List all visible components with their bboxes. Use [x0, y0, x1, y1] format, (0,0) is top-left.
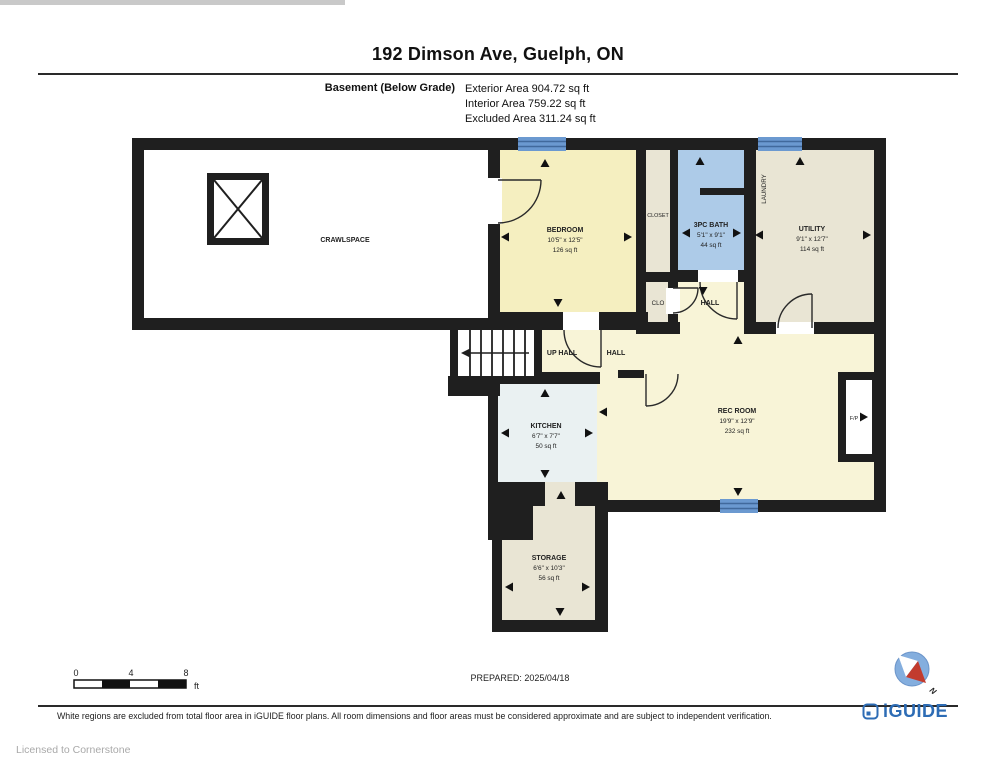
closet-floor [646, 150, 670, 272]
room-label-utility: UTILITY [799, 226, 826, 233]
room-label-hall: HALL [701, 300, 720, 307]
room-label-laundry: LAUNDRY [761, 174, 768, 203]
room-dims-bath: 5'1" x 9'1" [697, 232, 725, 239]
iguide-logo-icon [862, 703, 879, 720]
chimney-box [207, 173, 269, 245]
room-label-bedroom: BEDROOM [547, 227, 584, 234]
prepared-date: PREPARED: 2025/04/18 [400, 673, 640, 683]
room-area-rec-room: 232 sq ft [725, 428, 750, 435]
room-label-kitchen: KITCHEN [530, 423, 561, 430]
room-area-bath: 44 sq ft [701, 242, 722, 249]
room-label-storage: STORAGE [532, 555, 567, 562]
bedroom-window [518, 137, 566, 151]
room-label-hall2: HALL [607, 350, 626, 357]
utility-window [758, 137, 802, 151]
disclaimer-text: White regions are excluded from total fl… [57, 711, 772, 721]
scale-tick-0: 0 [73, 668, 78, 678]
bath-floor [678, 150, 744, 272]
scale-unit: ft [194, 681, 200, 691]
crawlspace-floor [144, 150, 488, 318]
staircase [458, 330, 534, 376]
iguide-logo: iGUIDE [862, 701, 948, 722]
scale-tick-8: 8 [183, 668, 188, 678]
floor-plan-canvas: CRAWLSPACE BEDROOM 10'5" x 12'5" 126 sq … [0, 0, 996, 768]
iguide-logo-text: iGUIDE [883, 701, 948, 722]
room-area-kitchen: 50 sq ft [536, 443, 557, 450]
rec-room-floor [597, 334, 874, 500]
room-label-rec-room: REC ROOM [718, 408, 757, 415]
room-dims-kitchen: 6'7" x 7'7" [532, 433, 560, 440]
license-note: Licensed to Cornerstone [16, 744, 130, 756]
room-label-bath: 3PC BATH [694, 222, 728, 229]
compass-north-label: N [928, 686, 938, 697]
rec-room-window [720, 499, 758, 513]
room-area-storage: 56 sq ft [539, 575, 560, 582]
room-area-bedroom: 126 sq ft [553, 247, 578, 254]
fireplace-label: F/P [850, 416, 859, 422]
room-dims-storage: 6'6" x 10'3" [533, 565, 565, 572]
room-label-clo: CLO [652, 300, 665, 307]
room-label-crawlspace: CRAWLSPACE [320, 237, 370, 244]
footer-divider [38, 705, 958, 707]
room-area-utility: 114 sq ft [800, 246, 824, 253]
scale-bar: 0 4 8 ft [73, 668, 199, 691]
room-dims-utility: 9'1" x 12'7" [796, 236, 828, 243]
compass: N [895, 652, 938, 696]
room-dims-rec-room: 19'9" x 12'9" [719, 418, 754, 425]
room-dims-bedroom: 10'5" x 12'5" [547, 237, 582, 244]
floor-plan-page: 192 Dimson Ave, Guelph, ON Basement (Bel… [0, 0, 996, 768]
room-label-closet: CLOSET [647, 213, 669, 219]
room-label-up-hall: UP HALL [547, 350, 578, 357]
scale-tick-4: 4 [128, 668, 133, 678]
